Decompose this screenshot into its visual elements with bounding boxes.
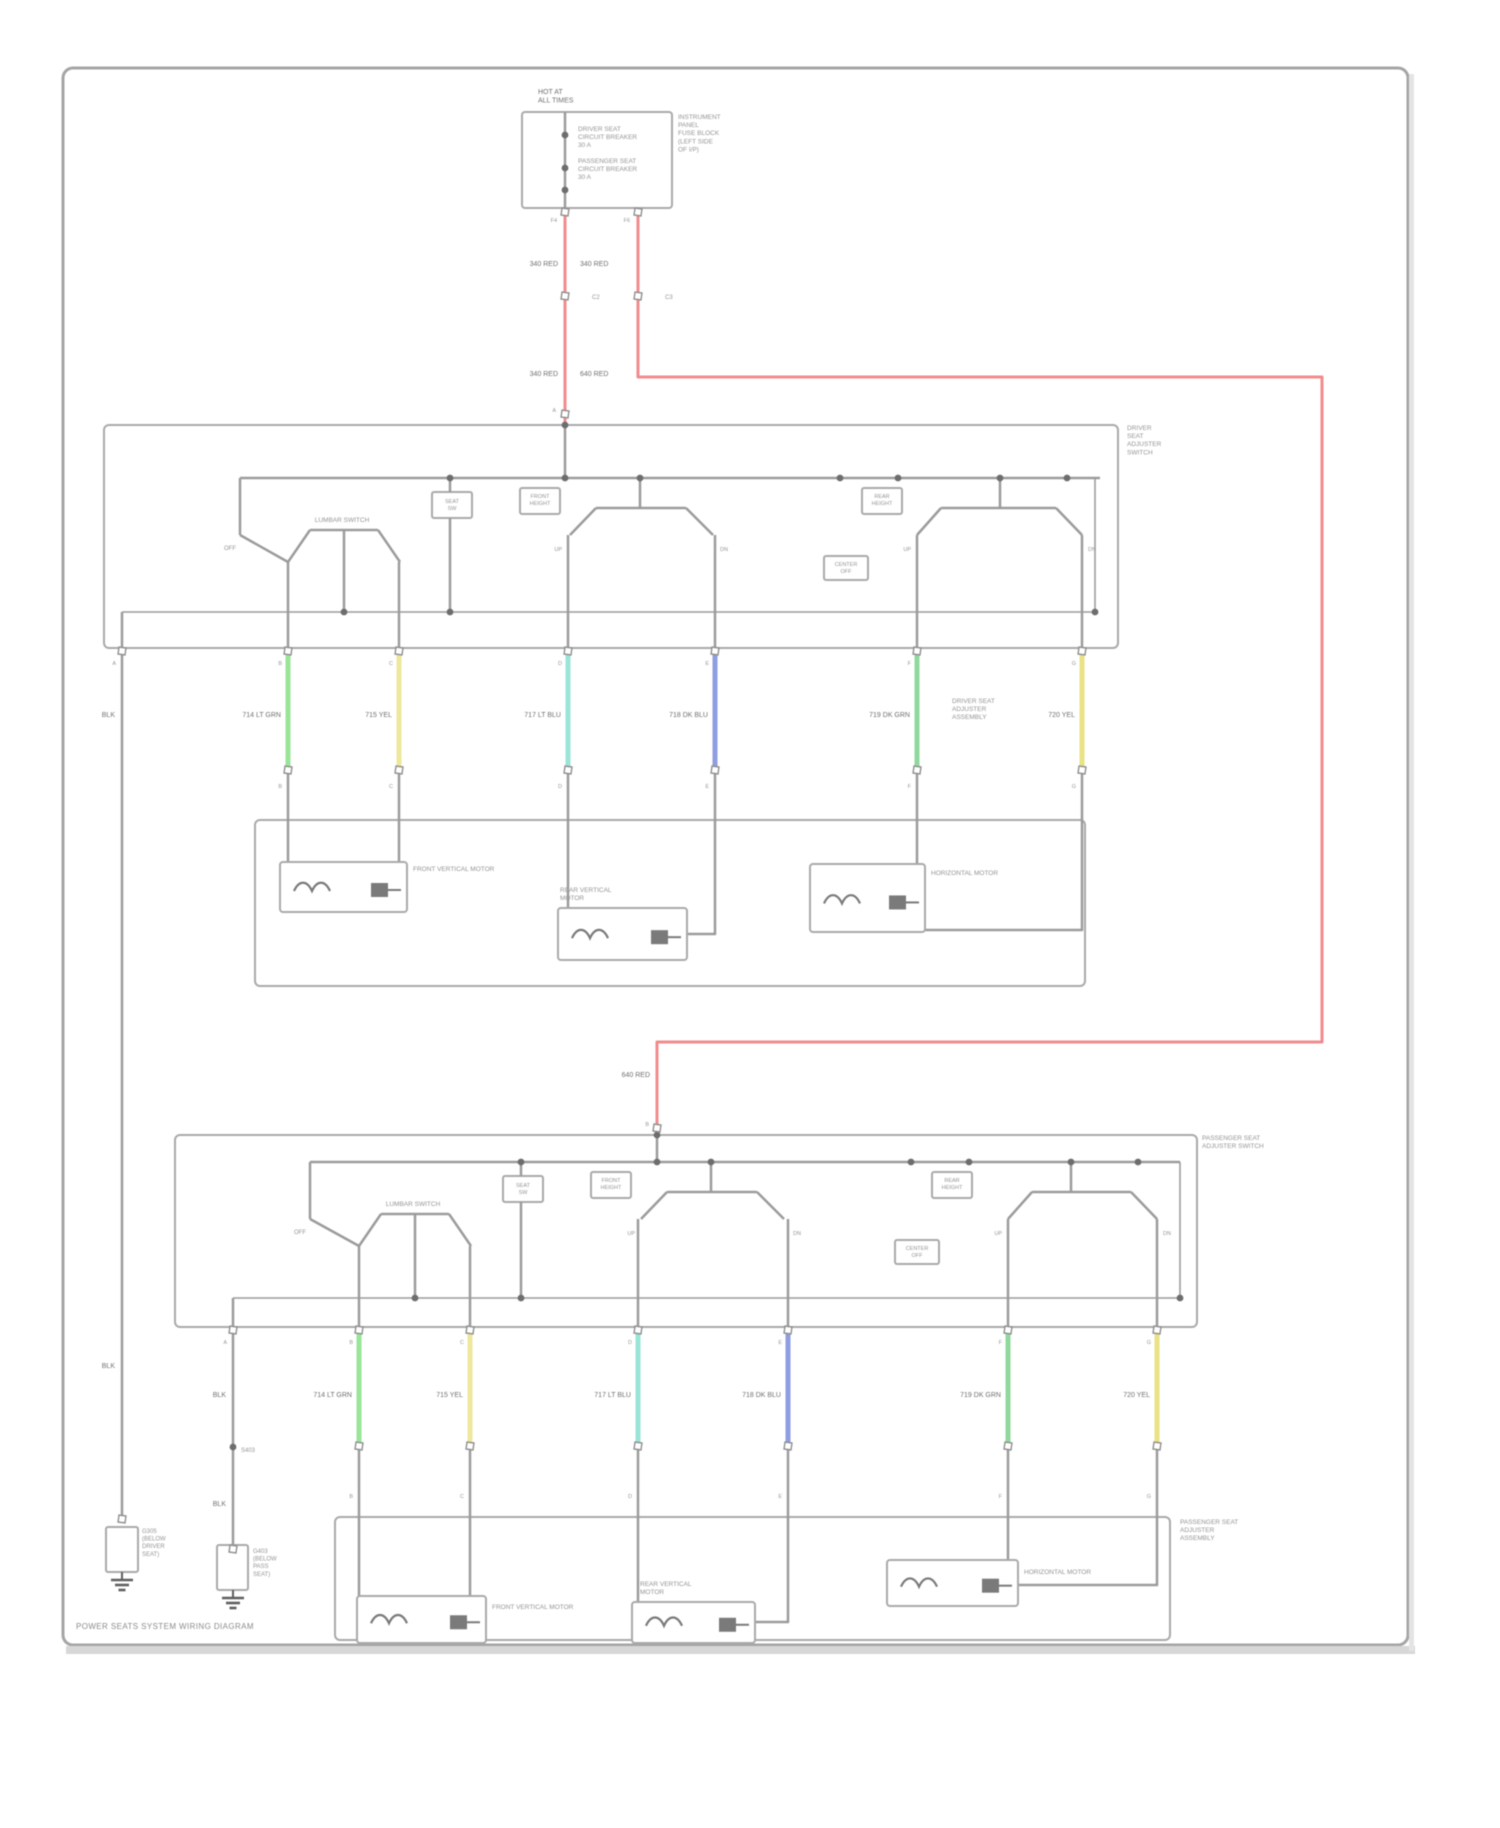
diagram-label: UP bbox=[903, 547, 911, 553]
diagram-label: 719 DK GRN bbox=[869, 712, 910, 719]
passenger-horizontal-motor bbox=[887, 1560, 1018, 1606]
diagram-label: DN bbox=[1088, 547, 1096, 553]
diagram-label: B bbox=[645, 1122, 649, 1128]
diagram-label: A bbox=[223, 1340, 227, 1346]
diagram-label: DRIVERSEATADJUSTERSWITCH bbox=[1127, 425, 1162, 456]
diagram-caption: POWER SEATS SYSTEM WIRING DIAGRAM bbox=[76, 1622, 254, 1631]
diagram-label: 714 LT GRN bbox=[242, 712, 281, 719]
diagram-label: BLK bbox=[102, 1363, 116, 1370]
diagram-label: A bbox=[552, 408, 556, 414]
diagram-label: G305(BELOWDRIVERSEAT) bbox=[142, 1529, 166, 1558]
diagram-label: UP bbox=[554, 547, 562, 553]
diagram-label: 640 RED bbox=[580, 371, 608, 378]
diagram-label: E bbox=[778, 1494, 782, 1500]
diagram-label: F bbox=[908, 784, 912, 790]
diagram-label: 717 LT BLU bbox=[594, 1392, 631, 1399]
diagram-label: 714 LT GRN bbox=[313, 1392, 352, 1399]
diagram-label: C bbox=[389, 784, 393, 790]
diagram-label: 640 RED bbox=[622, 1072, 650, 1079]
driver-aux-switch-box bbox=[432, 492, 472, 518]
diagram-label: F bbox=[908, 661, 912, 667]
passenger-center-off-box bbox=[895, 1240, 939, 1264]
boxes-layer bbox=[104, 112, 1197, 1640]
diagram-label: 340 RED bbox=[580, 261, 608, 268]
diagram-label: OFF bbox=[294, 1230, 306, 1236]
ground-passenger bbox=[222, 1598, 244, 1608]
ground-driver bbox=[111, 1580, 133, 1590]
diagram-label: UP bbox=[994, 1231, 1002, 1237]
diagram-label: FRONTHEIGHT bbox=[601, 1178, 622, 1191]
passenger-aux-switch-box bbox=[503, 1176, 543, 1202]
diagram-label: D bbox=[558, 784, 562, 790]
diagram-label: HORIZONTAL MOTOR bbox=[931, 870, 998, 877]
diagram-label: E bbox=[705, 784, 709, 790]
diagram-label: UP bbox=[627, 1231, 635, 1237]
diagram-label: 715 YEL bbox=[365, 712, 392, 719]
diagram-label: LUMBAR SWITCH bbox=[315, 517, 370, 524]
driver-rear-vertical-motor bbox=[558, 908, 687, 960]
diagram-label: E bbox=[778, 1340, 782, 1346]
diagram-label: B bbox=[349, 1494, 353, 1500]
diagram-label: A bbox=[112, 661, 116, 667]
diagram-label: 340 RED bbox=[530, 371, 558, 378]
diagram-label: FRONTHEIGHT bbox=[530, 494, 551, 507]
diagram-label: 720 YEL bbox=[1123, 1392, 1150, 1399]
diagram-label: B bbox=[278, 661, 282, 667]
diagram-label: PASSENGER SEATADJUSTER SWITCH bbox=[1202, 1135, 1264, 1150]
diagram-label: D bbox=[628, 1340, 632, 1346]
diagram-label: 340 RED bbox=[530, 261, 558, 268]
ground-connector-driver bbox=[106, 1527, 138, 1572]
diagram-label: 720 YEL bbox=[1048, 712, 1075, 719]
diagram-label: F bbox=[999, 1494, 1003, 1500]
diagram-label: 718 DK BLU bbox=[669, 712, 708, 719]
diagram-label: FRONT VERTICAL MOTOR bbox=[413, 866, 495, 873]
diagram-label: 715 YEL bbox=[436, 1392, 463, 1399]
diagram-label: FRONT VERTICAL MOTOR bbox=[492, 1604, 574, 1611]
diagram-label: OFF bbox=[224, 546, 236, 552]
diagram-label: F6 bbox=[624, 218, 630, 224]
diagram-label: F4 bbox=[551, 218, 557, 224]
diagram-label: E bbox=[705, 661, 709, 667]
diagram-label: PASSENGER SEATADJUSTERASSEMBLY bbox=[1180, 1519, 1238, 1542]
diagram-label: G403(BELOWPASSSEAT) bbox=[253, 1549, 277, 1578]
diagram-label: C bbox=[460, 1340, 464, 1346]
diagram-label: C2 bbox=[592, 295, 600, 301]
diagram-label: DRIVER SEATADJUSTERASSEMBLY bbox=[952, 698, 995, 721]
diagram-label: D bbox=[628, 1494, 632, 1500]
diagram-label: LUMBAR SWITCH bbox=[386, 1201, 441, 1208]
diagram-label: G bbox=[1147, 1494, 1151, 1500]
diagram-label: G bbox=[1072, 784, 1076, 790]
diagram-label: C bbox=[389, 661, 393, 667]
diagram-label: BLK bbox=[102, 712, 116, 719]
diagram-label: C3 bbox=[665, 295, 673, 301]
wiring-diagram: HOT ATALL TIMESDRIVER SEATCIRCUIT BREAKE… bbox=[0, 0, 1500, 1828]
driver-switch-box bbox=[104, 425, 1118, 648]
diagram-label: C bbox=[460, 1494, 464, 1500]
diagram-label: INSTRUMENTPANELFUSE BLOCK(LEFT SIDEOF I/… bbox=[678, 114, 721, 153]
driver-horizontal-motor bbox=[810, 864, 925, 932]
diagram-label: DN bbox=[1163, 1231, 1171, 1237]
diagram-label: F bbox=[999, 1340, 1003, 1346]
driver-center-off-box bbox=[824, 556, 868, 580]
diagram-label: 717 LT BLU bbox=[524, 712, 561, 719]
diagram-label: G bbox=[1072, 661, 1076, 667]
diagram-label: BLK bbox=[213, 1501, 227, 1508]
diagram-label: DN bbox=[720, 547, 728, 553]
diagram-label: D bbox=[558, 661, 562, 667]
diagram-label: DN bbox=[793, 1231, 801, 1237]
driver-front-vertical-motor bbox=[280, 862, 407, 912]
wiring-diagram-page: HOT ATALL TIMESDRIVER SEATCIRCUIT BREAKE… bbox=[0, 0, 1500, 1828]
passenger-rear-vertical-motor bbox=[632, 1602, 755, 1643]
diagram-label: S403 bbox=[241, 1448, 256, 1454]
diagram-label: B bbox=[349, 1340, 353, 1346]
diagram-label: G bbox=[1147, 1340, 1151, 1346]
diagram-label: HOT ATALL TIMES bbox=[538, 89, 574, 105]
diagram-label: HORIZONTAL MOTOR bbox=[1024, 1569, 1091, 1576]
diagram-label: 718 DK BLU bbox=[742, 1392, 781, 1399]
diagram-label: BLK bbox=[213, 1392, 227, 1399]
passenger-front-vertical-motor bbox=[357, 1596, 486, 1643]
diagram-label: B bbox=[278, 784, 282, 790]
diagram-label: 719 DK GRN bbox=[960, 1392, 1001, 1399]
